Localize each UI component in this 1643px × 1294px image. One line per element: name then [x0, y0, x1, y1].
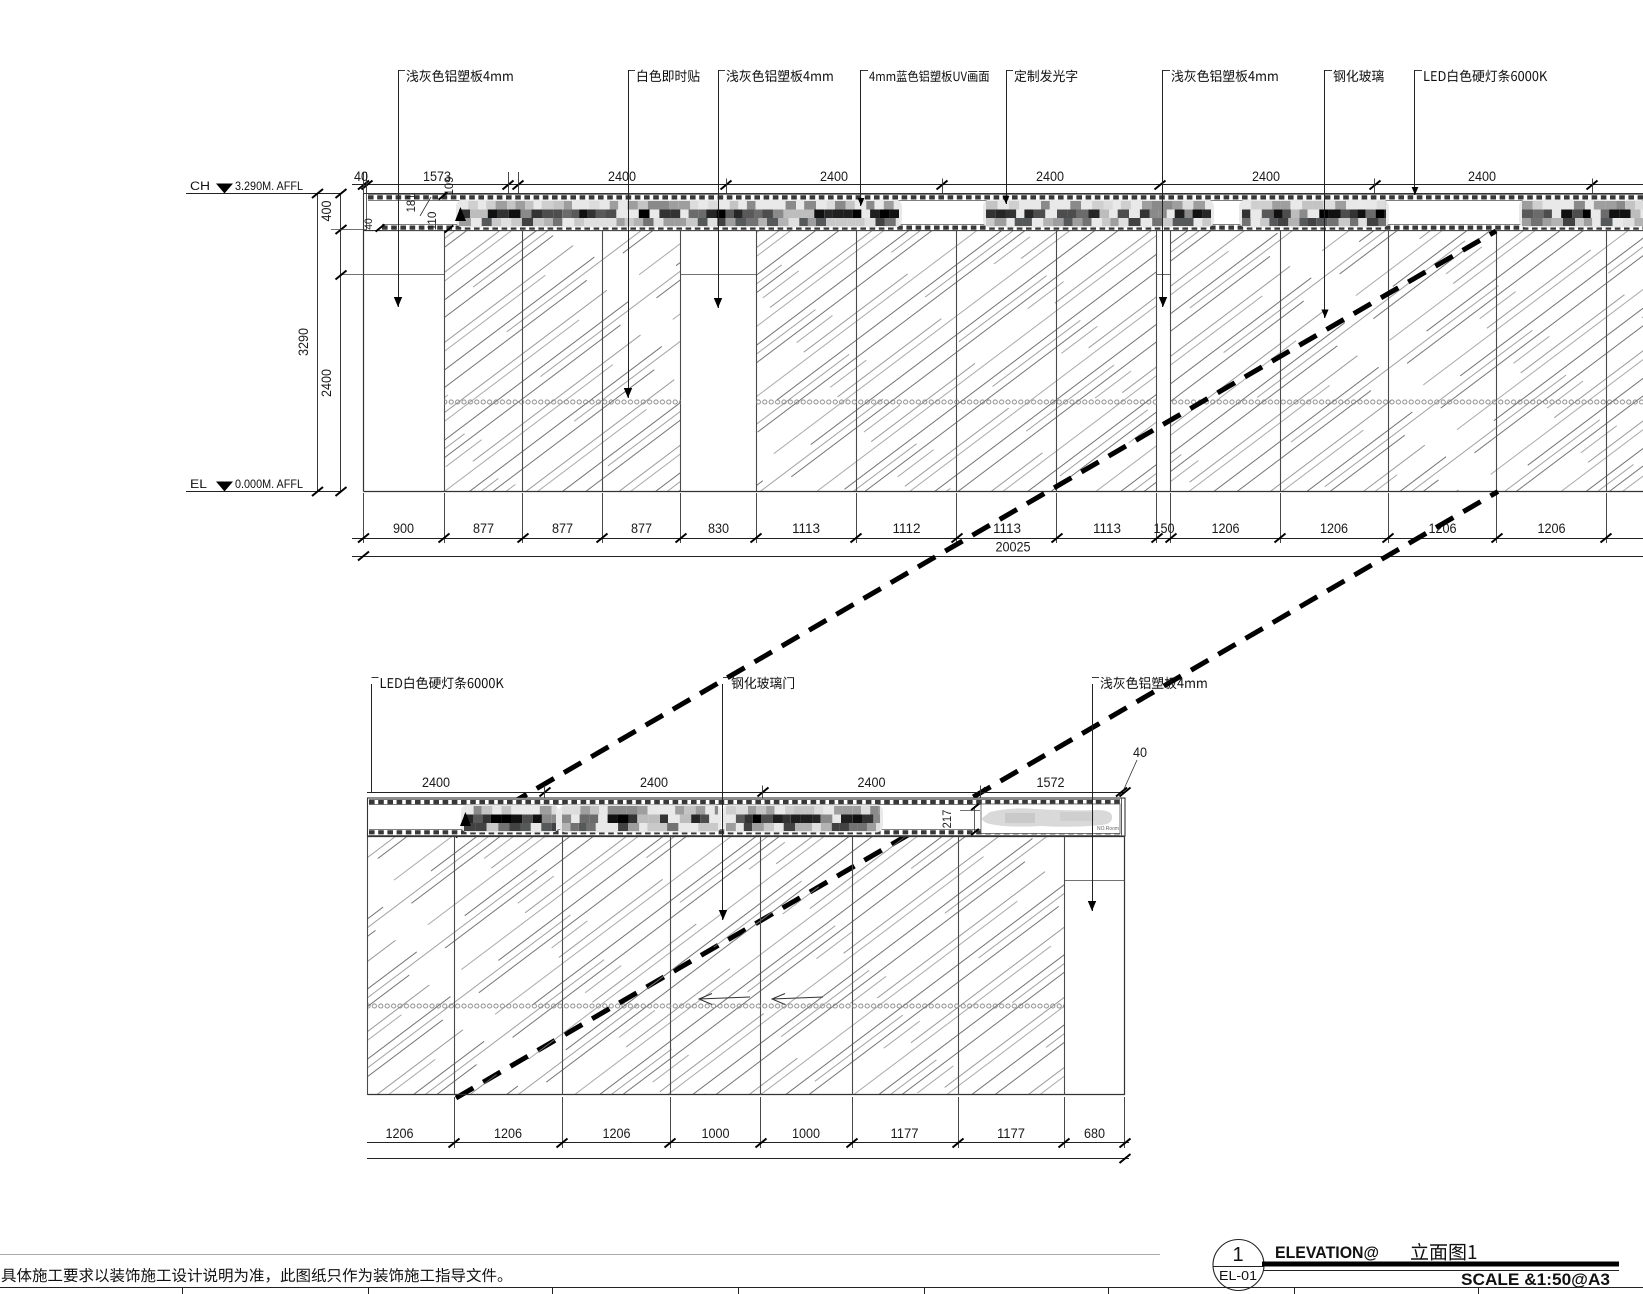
svg-text:1206: 1206 — [494, 1126, 522, 1141]
svg-text:2400: 2400 — [608, 169, 636, 184]
svg-text:830: 830 — [708, 521, 729, 536]
svg-text:40: 40 — [363, 218, 375, 229]
svg-text:2400: 2400 — [1468, 169, 1496, 184]
svg-text:877: 877 — [473, 521, 494, 536]
svg-text:1000: 1000 — [792, 1126, 820, 1141]
svg-text:40: 40 — [354, 169, 368, 184]
svg-text:217: 217 — [940, 809, 954, 828]
svg-text:1113: 1113 — [993, 521, 1021, 536]
svg-text:2400: 2400 — [422, 775, 450, 790]
svg-text:1: 1 — [1232, 1244, 1243, 1266]
svg-text:3.290M. AFFL: 3.290M. AFFL — [235, 179, 303, 193]
svg-text:ELEVATION@: ELEVATION@ — [1275, 1243, 1379, 1262]
svg-text:2400: 2400 — [1252, 169, 1280, 184]
svg-text:1177: 1177 — [997, 1126, 1025, 1141]
svg-text:2400: 2400 — [319, 369, 334, 397]
svg-text:900: 900 — [393, 521, 414, 536]
svg-text:877: 877 — [631, 521, 652, 536]
svg-text:877: 877 — [552, 521, 573, 536]
svg-text:1113: 1113 — [792, 521, 820, 536]
svg-text:109: 109 — [442, 176, 456, 195]
svg-text:1206: 1206 — [1211, 521, 1239, 536]
svg-text:2400: 2400 — [820, 169, 848, 184]
svg-text:CH: CH — [190, 179, 210, 193]
svg-text:1177: 1177 — [890, 1126, 918, 1141]
svg-text:1000: 1000 — [701, 1126, 729, 1141]
svg-text:1206: 1206 — [1320, 521, 1348, 536]
svg-text:680: 680 — [1084, 1126, 1105, 1141]
svg-text:2400: 2400 — [1036, 169, 1064, 184]
svg-text:1206: 1206 — [602, 1126, 630, 1141]
svg-text:0.000M. AFFL: 0.000M. AFFL — [235, 477, 303, 491]
svg-text:40: 40 — [1133, 745, 1147, 760]
svg-text:400: 400 — [319, 200, 334, 221]
svg-text:150: 150 — [1153, 521, 1174, 536]
svg-text:EL: EL — [190, 477, 207, 491]
svg-text:181: 181 — [404, 193, 418, 212]
svg-text:3290: 3290 — [296, 328, 311, 356]
svg-text:20025: 20025 — [995, 540, 1030, 555]
svg-text:1206: 1206 — [1537, 521, 1565, 536]
svg-text:1206: 1206 — [385, 1126, 413, 1141]
svg-text:2400: 2400 — [857, 775, 885, 790]
svg-text:1112: 1112 — [892, 521, 920, 536]
svg-text:1113: 1113 — [1093, 521, 1121, 536]
svg-text:EL-01: EL-01 — [1219, 1269, 1257, 1283]
svg-text:110: 110 — [425, 211, 439, 230]
svg-text:1572: 1572 — [1036, 775, 1064, 790]
svg-text:SCALE &1:50@A3: SCALE &1:50@A3 — [1461, 1270, 1610, 1289]
svg-text:2400: 2400 — [640, 775, 668, 790]
svg-text:NO.Room: NO.Room — [1097, 826, 1119, 832]
